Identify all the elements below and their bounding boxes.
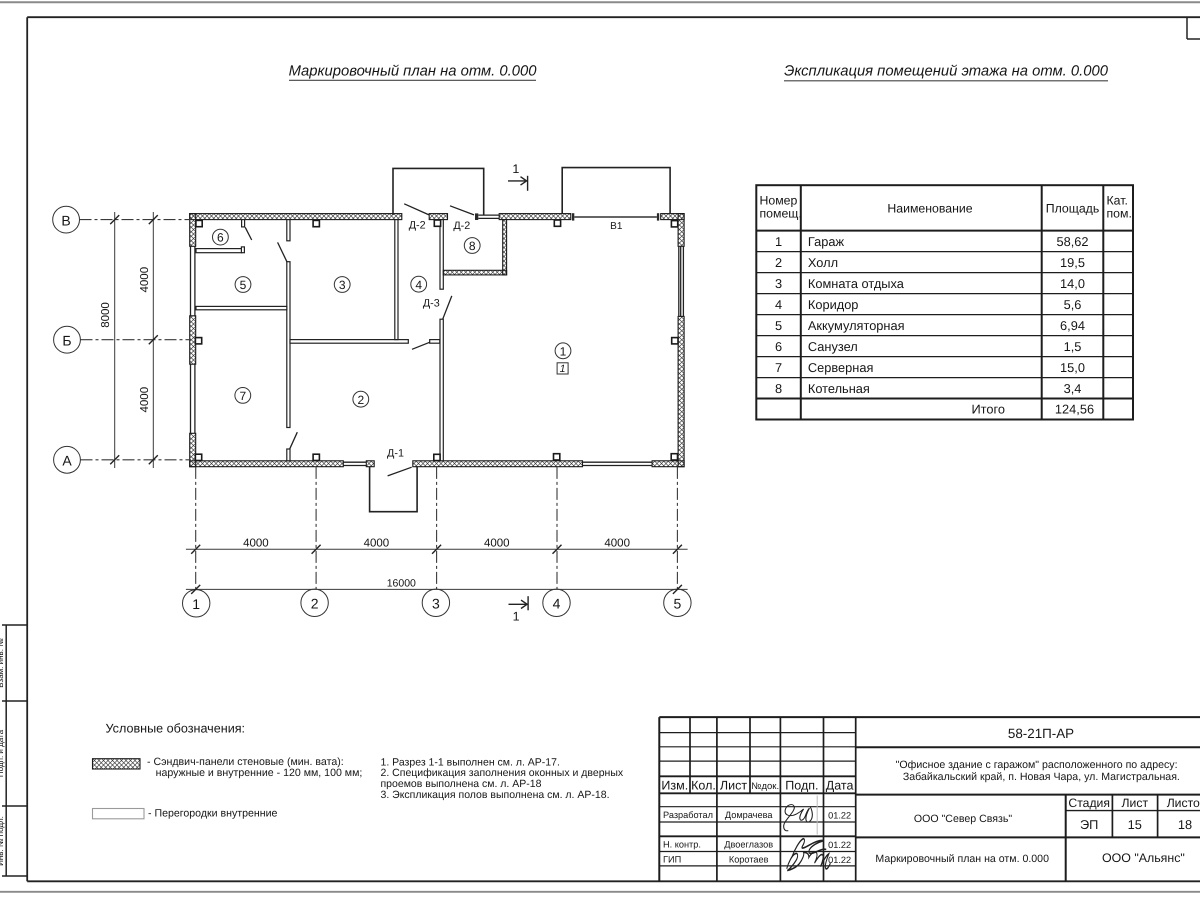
svg-text:2: 2 (311, 596, 319, 612)
svg-text:Подп.: Подп. (785, 778, 818, 792)
svg-text:Двоеглазов: Двоеглазов (724, 840, 773, 850)
svg-text:Комната отдыха: Комната отдыха (808, 276, 905, 291)
svg-text:5: 5 (240, 278, 247, 292)
svg-text:14,0: 14,0 (1060, 276, 1085, 291)
svg-text:Коридор: Коридор (808, 297, 859, 312)
svg-text:4000: 4000 (139, 387, 151, 413)
svg-text:4: 4 (775, 297, 782, 312)
svg-text:7: 7 (775, 360, 782, 375)
svg-text:ГИП: ГИП (663, 854, 681, 864)
svg-text:2: 2 (775, 255, 782, 270)
svg-text:ООО "Альянс": ООО "Альянс" (1102, 851, 1185, 865)
svg-text:Подп. и дата: Подп. и дата (0, 729, 5, 777)
svg-text:1: 1 (560, 363, 566, 375)
svg-text:1: 1 (192, 596, 200, 612)
svg-text:8: 8 (469, 239, 476, 253)
svg-text:№док.: №док. (751, 781, 779, 792)
svg-text:Стадия: Стадия (1068, 796, 1110, 810)
svg-text:Котельная: Котельная (808, 381, 870, 396)
svg-text:ЭП: ЭП (1080, 817, 1098, 832)
svg-text:Н. контр.: Н. контр. (663, 840, 701, 850)
svg-text:3: 3 (775, 276, 782, 291)
svg-text:4000: 4000 (139, 267, 151, 293)
svg-text:18: 18 (1178, 817, 1192, 832)
svg-text:Гараж: Гараж (808, 234, 845, 249)
svg-text:6: 6 (775, 339, 782, 354)
svg-text:Изм.: Изм. (661, 778, 688, 792)
svg-text:Маркировочный план на отм. 0.0: Маркировочный план на отм. 0.000 (875, 853, 1049, 865)
svg-text:пом.: пом. (1107, 207, 1132, 221)
svg-text:8000: 8000 (100, 302, 112, 328)
svg-text:Д-2: Д-2 (409, 219, 426, 231)
svg-text:Листов: Листов (1167, 796, 1200, 810)
svg-text:124,56: 124,56 (1055, 402, 1094, 417)
svg-text:Кол.: Кол. (691, 778, 716, 792)
svg-text:ООО "Север Связь": ООО "Север Связь" (914, 813, 1012, 825)
svg-text:58-21П-АР: 58-21П-АР (1008, 726, 1074, 741)
svg-text:Лист: Лист (720, 778, 747, 792)
svg-text:5,6: 5,6 (1064, 297, 1082, 312)
svg-text:Санузел: Санузел (808, 339, 858, 354)
svg-text:Серверная: Серверная (808, 360, 874, 375)
svg-text:15,0: 15,0 (1060, 360, 1085, 375)
svg-text:1,5: 1,5 (1064, 339, 1082, 354)
svg-text:1: 1 (513, 610, 520, 624)
svg-text:Лист: Лист (1122, 796, 1149, 810)
svg-text:01.22: 01.22 (828, 811, 851, 821)
svg-text:4000: 4000 (243, 537, 269, 549)
svg-text:1: 1 (512, 162, 519, 176)
svg-text:Экспликация помещений этажа на: Экспликация помещений этажа на отм. 0.00… (784, 64, 1109, 80)
svg-text:3: 3 (339, 278, 346, 292)
svg-text:01.22: 01.22 (828, 855, 851, 865)
svg-text:3,4: 3,4 (1064, 381, 1082, 396)
svg-text:Наименование: Наименование (887, 202, 972, 216)
svg-text:Площадь: Площадь (1046, 202, 1100, 216)
svg-text:5: 5 (674, 596, 682, 612)
svg-text:Д-2: Д-2 (453, 220, 470, 232)
svg-text:4000: 4000 (364, 537, 390, 549)
svg-text:3: 3 (432, 596, 440, 612)
svg-text:Холл: Холл (808, 255, 838, 270)
svg-text:Дата: Дата (826, 778, 854, 792)
svg-text:Б: Б (62, 332, 71, 348)
svg-text:1: 1 (560, 344, 567, 358)
svg-text:5: 5 (775, 318, 782, 333)
svg-text:4000: 4000 (484, 537, 510, 549)
svg-text:15: 15 (1128, 817, 1142, 832)
svg-text:58,62: 58,62 (1056, 234, 1088, 249)
svg-text:7: 7 (239, 389, 246, 403)
svg-text:- Перегородки внутренние: - Перегородки внутренние (148, 808, 278, 820)
svg-text:Маркировочный план на отм. 0.0: Маркировочный план на отм. 0.000 (289, 64, 538, 80)
svg-text:Д-3: Д-3 (423, 298, 440, 310)
svg-text:19,5: 19,5 (1060, 255, 1085, 270)
svg-text:4: 4 (553, 596, 561, 612)
svg-text:1: 1 (775, 234, 782, 249)
svg-text:4: 4 (415, 278, 422, 292)
svg-text:3. Экспликация полов выполнена: 3. Экспликация полов выполнена см. л. АР… (381, 789, 610, 801)
svg-text:2: 2 (357, 393, 364, 407)
svg-text:"Офисное здание с гаражом" рас: "Офисное здание с гаражом" расположенног… (896, 759, 1178, 771)
svg-text:6: 6 (217, 231, 224, 245)
svg-text:6,94: 6,94 (1060, 318, 1085, 333)
svg-text:Взам. инв. №: Взам. инв. № (0, 638, 5, 688)
svg-text:Инв. № подл.: Инв. № подл. (0, 816, 5, 866)
svg-text:А: А (62, 453, 72, 469)
svg-text:Коротаев: Коротаев (729, 854, 769, 864)
svg-text:В1: В1 (610, 221, 623, 232)
svg-text:Условные обозначения:: Условные обозначения: (106, 722, 246, 736)
svg-text:Кат.: Кат. (1107, 194, 1128, 208)
svg-text:4000: 4000 (604, 537, 630, 549)
svg-text:наружные и внутренние - 120 мм: наружные и внутренние - 120 мм, 100 мм; (156, 767, 363, 779)
svg-text:16000: 16000 (387, 577, 416, 589)
svg-text:01.22: 01.22 (828, 840, 851, 850)
svg-text:Аккумуляторная: Аккумуляторная (808, 318, 905, 333)
svg-text:Итого: Итого (971, 402, 1005, 417)
svg-text:Д-1: Д-1 (387, 448, 404, 460)
svg-text:В: В (61, 212, 70, 228)
svg-text:8: 8 (775, 381, 782, 396)
svg-text:Разработал: Разработал (663, 810, 713, 820)
svg-text:Номер: Номер (760, 194, 798, 208)
svg-text:Домрачева: Домрачева (725, 810, 773, 820)
svg-text:Забайкальский край, п. Новая Ч: Забайкальский край, п. Новая Чара, ул. М… (903, 771, 1180, 783)
svg-text:помещ.: помещ. (760, 207, 802, 221)
